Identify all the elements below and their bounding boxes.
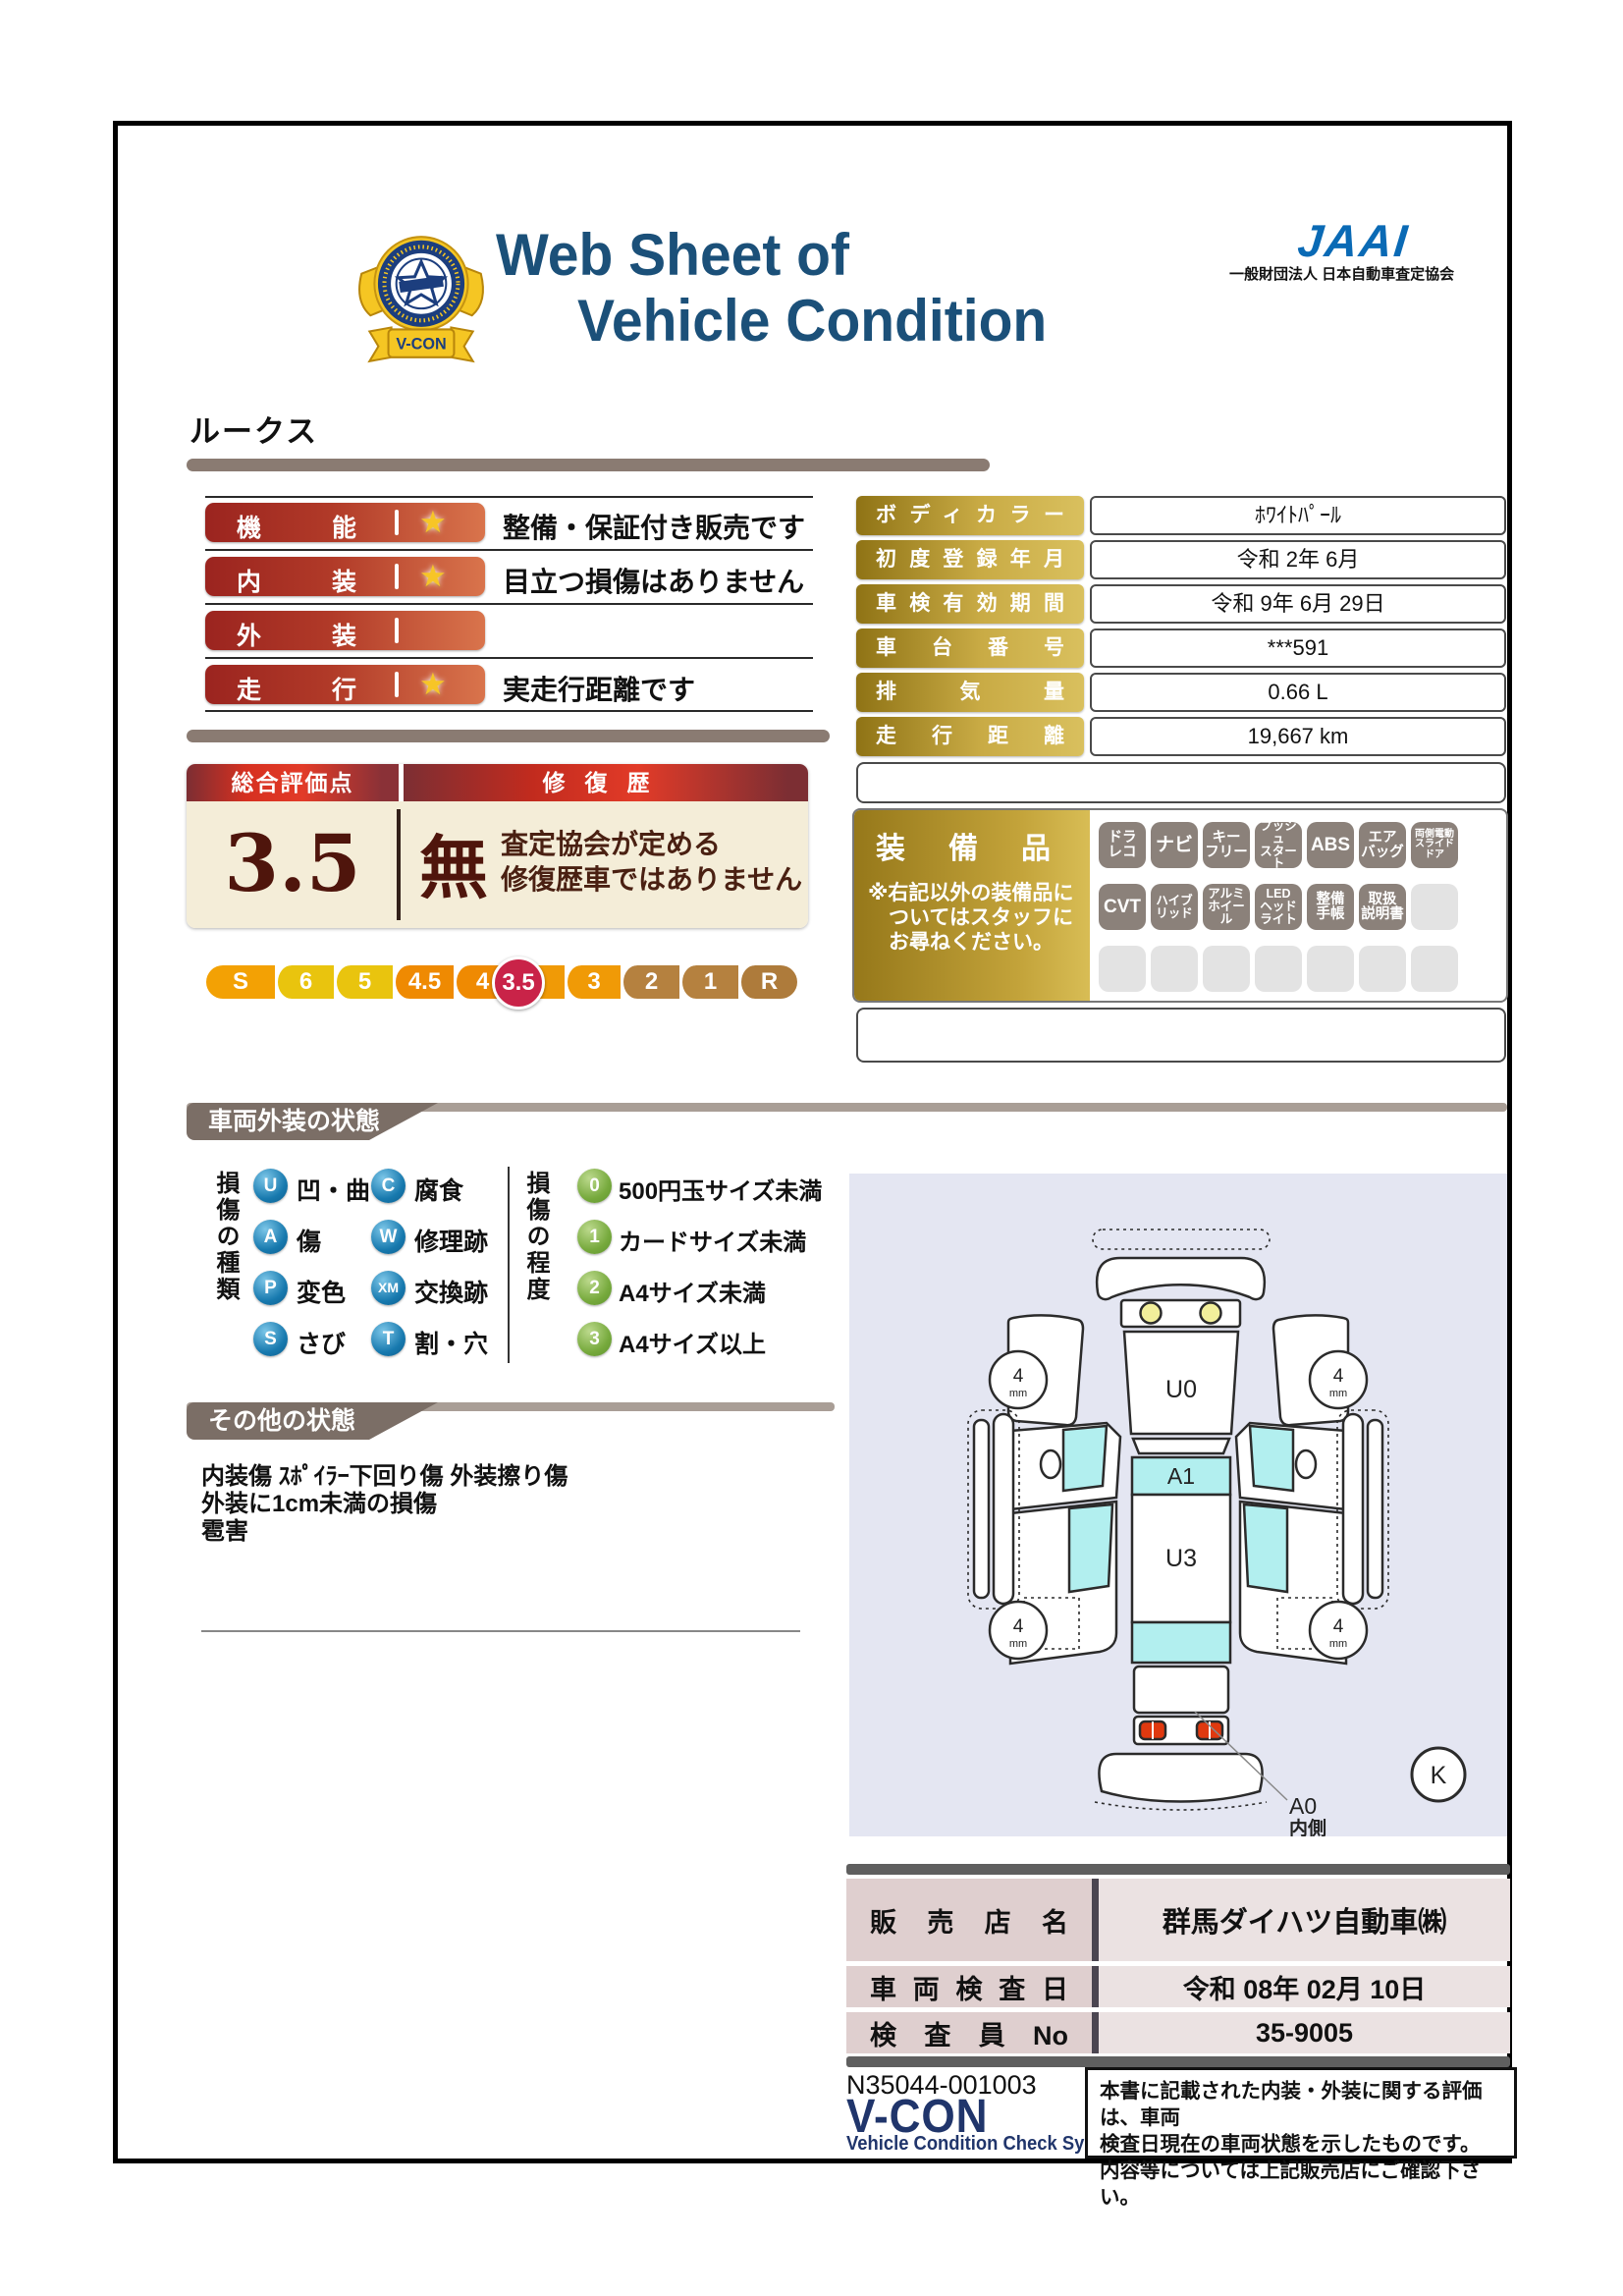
- equipment-badge-empty: [1151, 946, 1198, 992]
- scale-current-score: 3.5: [492, 957, 545, 1010]
- roof-front-label: A1: [1167, 1463, 1195, 1489]
- side-sill-inner: [994, 1414, 1013, 1604]
- equipment-badge-empty: [1099, 946, 1146, 992]
- svg-text:4: 4: [1013, 1366, 1024, 1387]
- svg-text:4: 4: [1333, 1366, 1344, 1387]
- car-side-left: [968, 1315, 1120, 1664]
- equipment-badge-empty: [1307, 946, 1354, 992]
- damage-type-a-icon: A: [253, 1220, 288, 1254]
- rear-window: [1132, 1622, 1230, 1663]
- equipment-badge-servicebook: 整備 手帳: [1307, 884, 1354, 930]
- rating-row-exterior: 外装: [205, 611, 834, 650]
- roof-label: U3: [1165, 1545, 1197, 1572]
- svg-text:mm: mm: [1329, 1638, 1347, 1650]
- info-value-mileage: 19,667 km: [1090, 717, 1506, 756]
- rating-note: 目立つ損傷はありません: [503, 561, 804, 600]
- dealer-inspector-label: 検査員No: [846, 2012, 1092, 2053]
- equipment-badge-ledheadlight: LED ヘッド ライト: [1255, 884, 1302, 930]
- rating-separator: [205, 657, 813, 659]
- page-frame: [113, 121, 1512, 2163]
- equipment-note: ※右記以外の装備品に ついてはスタッフに お尋ねください。: [868, 881, 1073, 955]
- repair-history-heading: 修復歴: [404, 764, 808, 801]
- rating-separator: [205, 496, 813, 498]
- damage-type-t-label: 割・穴: [414, 1325, 488, 1360]
- svg-text:mm: mm: [1329, 1388, 1347, 1399]
- damage-degree-2-icon: 2: [577, 1271, 612, 1305]
- equipment-extra-box: [856, 1008, 1506, 1063]
- equipment-badge-alloywheel: アルミ ホイール: [1203, 884, 1250, 930]
- damage-type-p-icon: P: [253, 1271, 288, 1305]
- damage-type-c-icon: C: [371, 1169, 406, 1203]
- car-damage-diagram: U0 A1 U3 4 mm 4 mm 4 mm 4 mm A0 内側 K: [849, 1174, 1507, 1836]
- door-mirror-icon: [1041, 1450, 1060, 1478]
- rating-label: 走行: [237, 671, 356, 706]
- vehicle-name: ルークス: [189, 407, 318, 451]
- dealer-inspector-value: 35-9005: [1099, 2012, 1510, 2053]
- damage-type-s-label: さび: [297, 1325, 346, 1360]
- legend-divider: [508, 1167, 510, 1363]
- damage-type-label: 損傷の種類: [208, 1171, 243, 1303]
- damage-type-w-label: 修理跡: [414, 1223, 488, 1258]
- damage-degree-3-label: A4サイズ以上: [619, 1325, 766, 1359]
- overall-body: 3.5 無 査定協会が定める 修復歴車ではありません: [187, 801, 808, 928]
- repair-history-mark: 無: [419, 813, 488, 912]
- dealer-divider: [1092, 1966, 1099, 2007]
- equipment-badge-hybrid: ハイブ リッド: [1151, 884, 1198, 930]
- body-divider: [397, 809, 401, 920]
- scale-seg-3: 3: [565, 965, 621, 999]
- damage-degree-label: 損傷の程度: [518, 1171, 553, 1303]
- info-label-chassis-number: 車台番号: [856, 629, 1084, 668]
- rating-label: 外装: [237, 617, 356, 652]
- side-sill-outer: [974, 1420, 989, 1598]
- jaai-logo: JAAI: [1295, 214, 1411, 267]
- rating-label: 内装: [237, 563, 356, 598]
- divider-bar-middle: [187, 730, 830, 742]
- rating-pill: 内装 ★: [205, 557, 485, 596]
- vcon-crest-logo: V-CON: [352, 222, 491, 371]
- rating-pill: 外装: [205, 611, 485, 650]
- info-value-chassis-number: ***591: [1090, 629, 1506, 668]
- jaai-subtitle: 一般財団法人 日本自動車査定協会: [1229, 263, 1454, 284]
- equipment-badge-dashcam: ドラ レコ: [1099, 822, 1146, 868]
- pill-divider: [395, 618, 399, 643]
- info-value-inspection-validity: 令和 9年 6月 29日: [1090, 584, 1506, 624]
- scale-seg-45: 4.5: [393, 965, 454, 999]
- dealer-table-top-bar: [846, 1864, 1510, 1875]
- rating-separator: [205, 549, 813, 551]
- rating-pill: 機能 ★: [205, 503, 485, 542]
- damage-type-a-label: 傷: [297, 1223, 321, 1258]
- info-label-first-registration: 初度登録年月: [856, 540, 1084, 579]
- damage-type-u-icon: U: [253, 1169, 288, 1203]
- repair-history-note: 査定協会が定める 修復歴車ではありません: [501, 827, 802, 898]
- overall-score-heading: 総合評価点: [187, 764, 399, 801]
- overall-score-value: 3.5: [187, 817, 399, 909]
- info-label-bodycolor: ボディカラー: [856, 496, 1084, 535]
- headlight-left-icon: [1141, 1303, 1162, 1324]
- svg-text:4: 4: [1013, 1616, 1024, 1637]
- dealer-row-inspection-date: 車両検査日 令和 08年 02月 10日: [846, 1966, 1510, 2007]
- front-bumper: [1097, 1258, 1265, 1299]
- dealer-date-label: 車両検査日: [846, 1966, 1092, 2007]
- info-value-displacement: 0.66 L: [1090, 673, 1506, 712]
- star-icon: ★: [419, 667, 447, 702]
- equipment-gold-panel: 装備品 ※右記以外の装備品に ついてはスタッフに お尋ねください。: [854, 810, 1090, 1001]
- headlight-panel: [1121, 1300, 1240, 1327]
- rating-note: 整備・保証付き販売です: [503, 507, 805, 546]
- scale-seg-1: 1: [679, 965, 738, 999]
- damage-degree-2-label: A4サイズ未満: [619, 1274, 766, 1308]
- svg-text:4: 4: [1333, 1616, 1344, 1637]
- dealer-row-inspector: 検査員No 35-9005: [846, 2012, 1510, 2053]
- page-title-line2: Vehicle Condition: [577, 287, 1047, 355]
- rating-separator: [205, 603, 813, 605]
- rear-hatch: [1134, 1667, 1228, 1713]
- pill-divider: [395, 564, 399, 589]
- other-condition-notes: 内装傷 ｽﾎﾟｲﾗｰ下回り傷 外装擦り傷 外装に1cm未満の損傷 雹害: [201, 1463, 830, 1546]
- overall-score-panel: 総合評価点 修復歴 3.5 無 査定協会が定める 修復歴車ではありません: [187, 764, 808, 928]
- equipment-badge-empty: [1203, 946, 1250, 992]
- equipment-badge-manual: 取扱 説明書: [1359, 884, 1406, 930]
- equipment-badge-powerslidedoor: 両側電動 スライド ドア: [1411, 822, 1458, 868]
- pill-divider: [395, 672, 399, 697]
- damage-degree-3-icon: 3: [577, 1322, 612, 1356]
- vehicle-condition-sheet: V-CON Web Sheet of Vehicle Condition JAA…: [0, 0, 1623, 2296]
- damage-type-xm-label: 交換跡: [414, 1274, 488, 1309]
- equipment-badge-pushstart: プッシュ スタート: [1255, 822, 1302, 868]
- front-door-window: [1063, 1426, 1107, 1491]
- info-value-first-registration: 令和 2年 6月: [1090, 540, 1506, 579]
- damage-degree-0-label: 500円玉サイズ未満: [619, 1172, 822, 1206]
- dealer-table-bottom-bar: [846, 2056, 1510, 2067]
- cowl: [1133, 1439, 1229, 1453]
- equipment-badge-airbag: エア バッグ: [1359, 822, 1406, 868]
- equipment-badge-cvt: CVT: [1099, 884, 1146, 930]
- pointer-label: A0: [1289, 1793, 1317, 1819]
- scale-seg-s: S: [206, 965, 275, 999]
- rating-separator: [205, 710, 813, 712]
- rating-label: 機能: [237, 509, 356, 544]
- rear-door-window: [1069, 1504, 1112, 1592]
- scale-seg-6: 6: [275, 965, 334, 999]
- damage-degree-1-label: カードサイズ未満: [619, 1223, 806, 1257]
- scale-seg-r: R: [738, 965, 797, 999]
- equipment-badge-empty: [1255, 946, 1302, 992]
- svg-text:mm: mm: [1009, 1638, 1027, 1650]
- damage-degree-1-icon: 1: [577, 1220, 612, 1254]
- info-value-bodycolor: ﾎﾜｲﾄﾊﾟｰﾙ: [1090, 496, 1506, 535]
- pointer-sub-label: 内側: [1289, 1817, 1326, 1836]
- damage-type-u-label: 凹・曲: [297, 1172, 370, 1207]
- rating-note: 実走行距離です: [503, 669, 695, 708]
- rating-row-mileage: 走行 ★ 実走行距離です: [205, 665, 834, 704]
- rating-row-interior: 内装 ★ 目立つ損傷はありません: [205, 557, 834, 596]
- equipment-badge-abs: ABS: [1307, 822, 1354, 868]
- star-icon: ★: [419, 505, 447, 540]
- equipment-badge-empty: [1359, 946, 1406, 992]
- equipment-badge-navi: ナビ: [1151, 822, 1198, 868]
- dealer-date-value: 令和 08年 02月 10日: [1099, 1966, 1510, 2007]
- equipment-title: 装備品: [876, 824, 1051, 867]
- equipment-panel: 装備品 ※右記以外の装備品に ついてはスタッフに お尋ねください。 ドラ レコ …: [852, 808, 1508, 1003]
- rating-row-function: 機能 ★ 整備・保証付き販売です: [205, 503, 834, 542]
- info-label-displacement: 排気量: [856, 673, 1084, 712]
- star-icon: ★: [419, 559, 447, 594]
- pill-divider: [395, 510, 399, 535]
- crest-vcon-label: V-CON: [396, 336, 446, 354]
- scale-seg-5: 5: [334, 965, 393, 999]
- disclaimer-box: 本書に記載された内装・外装に関する評価は、車両 検査日現在の車両状態を示したもの…: [1085, 2067, 1517, 2159]
- key-label: K: [1431, 1762, 1447, 1789]
- equipment-badge-keyfree: キー フリー: [1203, 822, 1250, 868]
- dealer-row-shop: 販売店名 群馬ダイハツ自動車㈱: [846, 1879, 1510, 1961]
- svg-text:mm: mm: [1009, 1388, 1027, 1399]
- damage-type-p-label: 変色: [297, 1274, 346, 1309]
- damage-degree-0-icon: 0: [577, 1169, 612, 1203]
- info-extra-box: [856, 762, 1506, 803]
- divider-bar-top: [187, 459, 990, 471]
- rear-bumper: [1099, 1754, 1262, 1802]
- overall-header: 総合評価点 修復歴: [187, 764, 808, 801]
- dealer-shop-label: 販売店名: [846, 1879, 1092, 1961]
- damage-type-w-icon: W: [371, 1220, 406, 1254]
- dealer-shop-value: 群馬ダイハツ自動車㈱: [1099, 1879, 1510, 1961]
- damage-type-s-icon: S: [253, 1322, 288, 1356]
- equipment-badge-empty: [1411, 946, 1458, 992]
- damage-type-xm-icon: XM: [371, 1271, 406, 1305]
- page-title-line1: Web Sheet of: [496, 221, 849, 289]
- headlight-right-icon: [1201, 1303, 1221, 1324]
- dealer-divider: [1092, 2012, 1099, 2053]
- damage-type-t-icon: T: [371, 1322, 406, 1356]
- notes-underline: [201, 1630, 800, 1632]
- info-label-inspection-validity: 車検有効期間: [856, 584, 1084, 624]
- rating-pill: 走行 ★: [205, 665, 485, 704]
- scale-seg-2: 2: [621, 965, 679, 999]
- info-label-mileage: 走行距離: [856, 717, 1084, 756]
- windshield-label: U0: [1165, 1376, 1197, 1403]
- damage-type-c-label: 腐食: [414, 1172, 463, 1207]
- equipment-badge-empty: [1411, 884, 1458, 930]
- dealer-divider: [1092, 1879, 1099, 1961]
